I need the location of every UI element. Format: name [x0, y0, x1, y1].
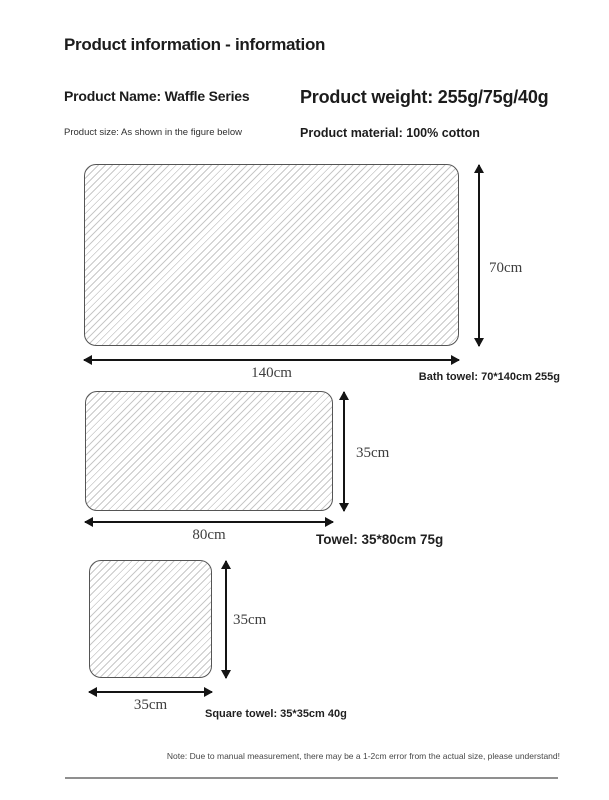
product-material: Product material: 100% cotton [300, 126, 480, 142]
towel-width-label: 80cm [85, 528, 333, 543]
towel-height-arrow [343, 392, 345, 511]
bath-towel-width-label: 140cm [84, 366, 459, 381]
square-towel-height-label: 35cm [233, 613, 266, 628]
square-towel-width-label: 35cm [89, 698, 212, 713]
towel-caption: Towel: 35*80cm 75g [316, 532, 443, 548]
bath-towel-caption: Bath towel: 70*140cm 255g [419, 371, 560, 384]
page-title: Product information - information [64, 34, 325, 55]
product-name: Product Name: Waffle Series [64, 88, 249, 106]
square-towel-height-arrow [225, 561, 227, 678]
bath-towel-swatch [84, 164, 459, 346]
bath-towel-width-arrow [84, 359, 459, 361]
product-info-page: Product information - information Produc… [0, 0, 609, 800]
product-weight: Product weight: 255g/75g/40g [300, 86, 548, 109]
square-towel-caption: Square towel: 35*35cm 40g [205, 708, 347, 721]
bath-towel-height-label: 70cm [489, 261, 522, 276]
bottom-divider [65, 777, 558, 779]
measurement-footnote: Note: Due to manual measurement, there m… [140, 751, 560, 761]
square-towel-swatch [89, 560, 212, 678]
bath-towel-height-arrow [478, 165, 480, 346]
towel-swatch [85, 391, 333, 511]
square-towel-width-arrow [89, 691, 212, 693]
towel-height-label: 35cm [356, 446, 389, 461]
product-size-note: Product size: As shown in the figure bel… [64, 127, 242, 139]
towel-width-arrow [85, 521, 333, 523]
